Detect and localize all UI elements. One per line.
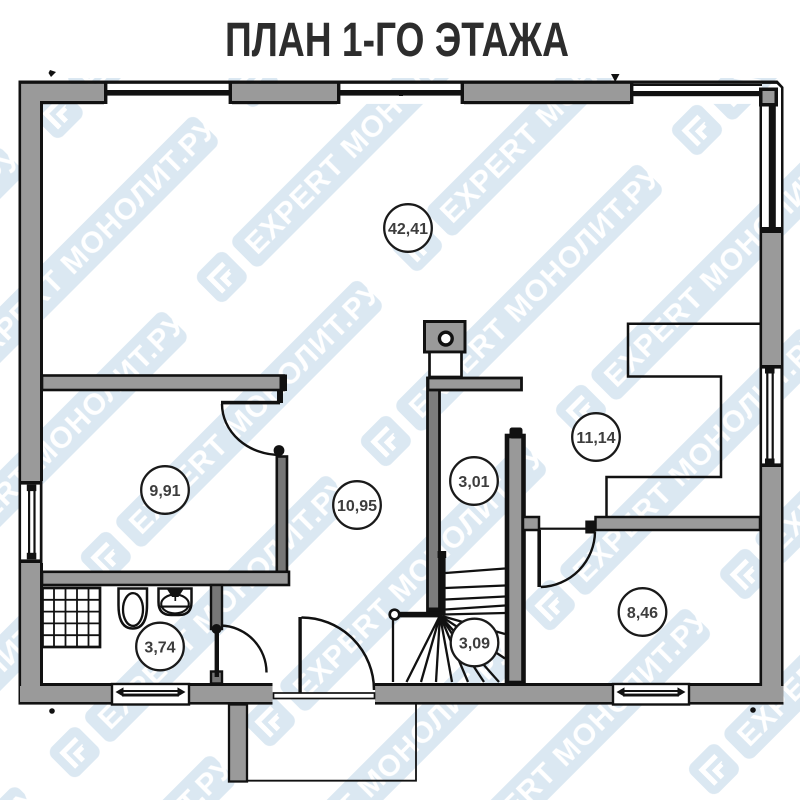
svg-text:9,91: 9,91 xyxy=(149,483,180,500)
svg-text:8,46: 8,46 xyxy=(627,605,658,622)
svg-text:10,95: 10,95 xyxy=(337,498,377,515)
svg-text:3,01: 3,01 xyxy=(458,474,489,491)
svg-text:ПЛАН 1-ГО ЭТАЖА: ПЛАН 1-ГО ЭТАЖА xyxy=(225,14,569,67)
svg-text:3,74: 3,74 xyxy=(144,640,175,657)
svg-text:3,09: 3,09 xyxy=(459,636,490,653)
svg-text:11,14: 11,14 xyxy=(576,430,615,447)
svg-text:42,41: 42,41 xyxy=(388,221,428,238)
